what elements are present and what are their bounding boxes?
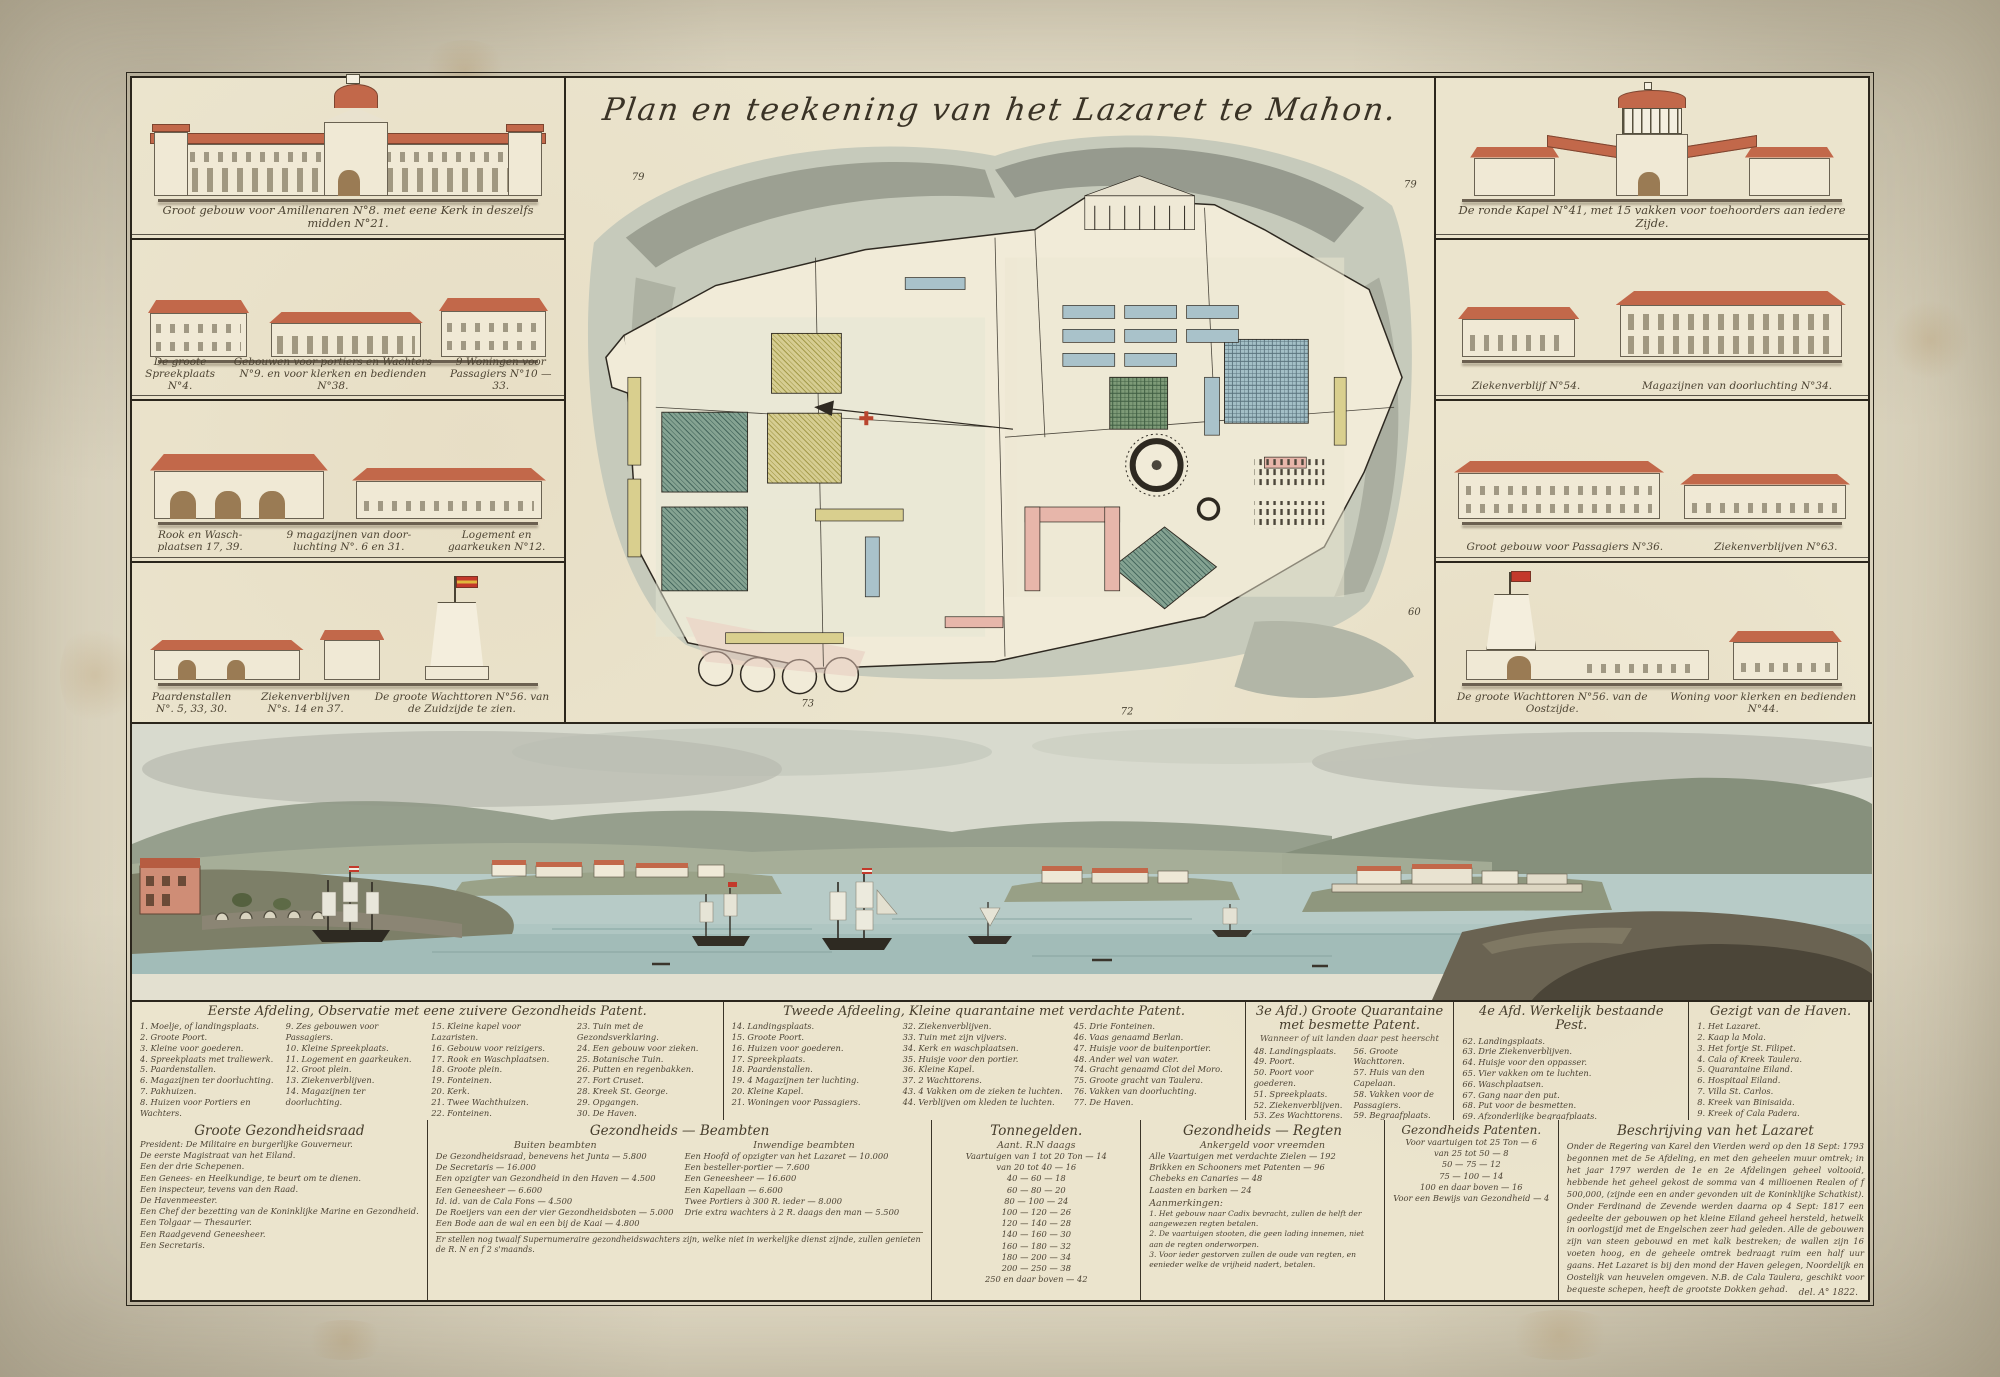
legend-entry: 5. Quarantaine Eiland. <box>1697 1064 1864 1075</box>
legend-entry: 76. Vakken van doorluchting. <box>1074 1086 1237 1097</box>
legend-entry: 59. Begraafplaats. <box>1353 1110 1445 1120</box>
caption-text: Gebouwen voor portiers en Wachters N°9. … <box>228 356 437 392</box>
regten-note: 3. Voor ieder gestorven zullen de oude v… <box>1149 1250 1376 1271</box>
elevation-panel-watchtower-south: Paardenstallen N°. 5, 33, 30.Ziekenverbl… <box>132 563 564 723</box>
legend-entry: 15. Kleine kapel voor Lazaristen. <box>431 1021 569 1043</box>
elevation-panel-great-building: Groot gebouw voor Amillenaren N°8. met e… <box>132 78 564 240</box>
right-elevation-column: De ronde Kapel N°41, met 15 vakken voor … <box>1434 78 1868 722</box>
elevation-panel-spreekplaats: De groote Spreekplaats N°4.Gebouwen voor… <box>132 240 564 402</box>
patenten-row: van 25 tot 50 — 8 <box>1393 1148 1550 1159</box>
foxing-stain <box>300 1320 390 1360</box>
legend-col-gezigt-haven: Gezigt van de Haven. 1. Het Lazaret.2. K… <box>1689 1002 1872 1120</box>
site-plan-cell: Plan en teekening van het Lazaret te Mah… <box>566 78 1434 722</box>
legend-entry: 77. De Haven. <box>1074 1097 1237 1108</box>
beambten-row: Een Bode aan de wal en een bij de Kaai —… <box>436 1218 675 1229</box>
subsection-header: Buiten beambten <box>436 1140 675 1151</box>
legend-entry: 35. Huisje voor den portier. <box>903 1054 1066 1065</box>
caption-text: Groot gebouw voor Passagiers N°36. <box>1466 541 1663 553</box>
legend-entry: 30. De Haven. <box>577 1108 715 1119</box>
legend-entry: 19. 4 Magazijnen ter luchting. <box>732 1075 895 1086</box>
legend-entry: 9. Kreek of Cala Padera. <box>1697 1108 1864 1119</box>
foxing-stain <box>60 620 130 730</box>
legend-row-afdelingen: Eerste Afdeling, Observatie met eene zui… <box>132 1002 1872 1120</box>
section-beschrijving: Beschrijving van het Lazaret Onder de Re… <box>1559 1120 1872 1300</box>
legend-subheader: Wanneer of uit landen daar pest heerscht <box>1254 1034 1446 1044</box>
legend-entry: 8. Huizen voor Portiers en Wachters. <box>140 1097 278 1119</box>
legend-row-administratie: Groote Gezondheidsraad President: De Mil… <box>132 1120 1872 1300</box>
legend-entry: 34. Kerk en waschplaatsen. <box>903 1043 1066 1054</box>
tonnage-row: van 20 tot 40 — 16 <box>940 1162 1132 1173</box>
legend-col-tweede-afdeling: Tweede Afdeeling, Kleine quarantaine met… <box>724 1002 1246 1120</box>
beambten-inwendig: Inwendige beambten Een Hoofd of opzigter… <box>685 1139 924 1229</box>
elevation-panel-passagiers: Groot gebouw voor Passagiers N°36.Zieken… <box>1436 401 1868 563</box>
caption-text: De groote Spreekplaats N°4. <box>142 356 218 392</box>
beambten-row: Drie extra wachters à 2 R. daags den man… <box>685 1207 924 1218</box>
elevation-panel-magazijnen: Ziekenverblijf N°54.Magazijnen van doorl… <box>1436 240 1868 402</box>
legend-entry: 1. Moelje, of landingsplaats. <box>140 1021 278 1032</box>
tonnage-row: 180 — 200 — 34 <box>940 1252 1132 1263</box>
section-line: De eerste Magistraat van het Eiland. <box>140 1150 419 1161</box>
legend-entry: 44. Verblijven om kleden te luchten. <box>903 1097 1066 1108</box>
legend-entry: 33. Tuin met zijn vijvers. <box>903 1032 1066 1043</box>
legend-entry: 11. Logement en gaarkeuken. <box>286 1054 424 1065</box>
legend-entry: 29. Opgangen. <box>577 1097 715 1108</box>
beambten-buiten: Buiten beambten De Gezondheidsraad, bene… <box>436 1139 675 1229</box>
caption: Rook en Wasch- plaatsen 17, 39.9 magazij… <box>142 529 554 553</box>
legend-entry: 18. Paardenstallen. <box>732 1064 895 1075</box>
beambten-footnote: Er stellen nog twaalf Supernumeraire gez… <box>436 1232 924 1255</box>
section-line: Een Secretaris. <box>140 1240 419 1251</box>
legend-entries: 48. Landingsplaats.49. Poort.50. Poort v… <box>1254 1046 1446 1120</box>
legend-entry: 75. Groote gracht van Taulera. <box>1074 1075 1237 1086</box>
beambten-row: Een Geneesheer — 16.600 <box>685 1173 924 1184</box>
regten-notes: 1. Het gebouw naar Cadix bevracht, zulle… <box>1149 1209 1376 1271</box>
regten-rows: Alle Vaartuigen met verdachte Zielen — 1… <box>1149 1151 1376 1196</box>
section-line: Een Raadgevend Geneesheer. <box>140 1229 419 1240</box>
section-line: Een Tolgaar — Thesaurier. <box>140 1217 419 1228</box>
caption: Groot gebouw voor Amillenaren N°8. met e… <box>142 204 554 230</box>
site-plan: 79 79 60 73 72 <box>566 78 1434 721</box>
section-gezondheidsraad: Groote Gezondheidsraad President: De Mil… <box>132 1120 428 1300</box>
caption: De ronde Kapel N°41, met 15 vakken voor … <box>1446 204 1858 230</box>
caption: Ziekenverblijf N°54.Magazijnen van doorl… <box>1446 380 1858 392</box>
beambten-rows: Een Hoofd of opzigter van het Lazaret — … <box>685 1151 924 1218</box>
legend-entry: 16. Gebouw voor reizigers. <box>431 1043 569 1054</box>
legend-entries: 1. Het Lazaret.2. Kaap la Mola.3. Het fo… <box>1697 1021 1864 1118</box>
legend-entry: 23. Tuin met de Gezondsverklaring. <box>577 1021 715 1043</box>
tonnage-row: 200 — 250 — 38 <box>940 1263 1132 1274</box>
section-regten: Gezondheids — Regten Ankergeld voor vree… <box>1141 1120 1385 1300</box>
caption: De groote Spreekplaats N°4.Gebouwen voor… <box>142 356 554 392</box>
legend-entry: 48. Landingsplaats. <box>1254 1046 1346 1057</box>
top-zone: Groot gebouw voor Amillenaren N°8. met e… <box>132 78 1868 722</box>
legend-header: Eerste Afdeling, Observatie met eene zui… <box>140 1005 715 1019</box>
section-line: Een inspecteur, tevens van den Raad. <box>140 1184 419 1195</box>
elevation-drawing-stables-and-tower <box>146 573 550 687</box>
caption-text: Rook en Wasch- plaatsen 17, 39. <box>142 529 258 553</box>
legend-entry: 57. Huis van den Capelaan. <box>1353 1067 1445 1089</box>
notes-title: Aanmerkingen: <box>1149 1198 1376 1209</box>
patenten-row: Voor een Bewijs van Gezondheid — 4 <box>1393 1193 1550 1204</box>
regten-row: Chebeks en Canaries — 48 <box>1149 1173 1376 1184</box>
tonnage-row: 60 — 80 — 20 <box>940 1185 1132 1196</box>
legend-entry: 3. Het fortje St. Filipet. <box>1697 1043 1864 1054</box>
legend-entry: 37. 2 Wachttorens. <box>903 1075 1066 1086</box>
section-line: President: De Militaire en burgerlijke G… <box>140 1139 419 1150</box>
legend-entry: 64. Huisje voor den oppasser. <box>1462 1057 1680 1068</box>
tonnage-row: 100 — 120 — 26 <box>940 1207 1132 1218</box>
caption-text: Ziekenverblijven N°s. 14 en 37. <box>251 691 360 715</box>
beambten-row: Een Hoofd of opzigter van het Lazaret — … <box>685 1151 924 1162</box>
legend-entry: 32. Ziekenverblijven. <box>903 1021 1066 1032</box>
elevation-drawing-round-chapel <box>1450 88 1854 202</box>
svg-text:73: 73 <box>801 699 814 710</box>
harbor-panorama <box>132 722 1872 1002</box>
beambten-row: De Secretaris — 16.000 <box>436 1162 675 1173</box>
legend-entry: 6. Hospitaal Eiland. <box>1697 1075 1864 1086</box>
elevation-drawing-three-buildings <box>146 250 550 364</box>
legend-entry: 52. Ziekenverblijven. <box>1254 1100 1346 1111</box>
elevation-drawing-passenger-building <box>1450 411 1854 525</box>
legend-entry: 17. Spreekplaats. <box>732 1054 895 1065</box>
foxing-stain <box>1500 1310 1620 1360</box>
legend-entry: 74. Gracht genaamd Clot del Moro. <box>1074 1064 1237 1075</box>
section-beambten: Gezondheids — Beambten Buiten beambten D… <box>428 1120 933 1300</box>
legend-entry: 21. Woningen voor Passagiers. <box>732 1097 895 1108</box>
section-line: De Havenmeester. <box>140 1195 419 1206</box>
beambten-row: Een Kapellaan — 6.600 <box>685 1185 924 1196</box>
legend-entry: 48. Ander wel van water. <box>1074 1054 1237 1065</box>
legend-entry: 24. Een gebouw voor zieken. <box>577 1043 715 1054</box>
legend-header: 3e Afd.) Groote Quarantaine met besmette… <box>1254 1005 1446 1034</box>
patenten-row: Voor vaartuigen tot 25 Ton — 6 <box>1393 1137 1550 1148</box>
amount-label: Aant. R.N daags <box>940 1140 1132 1151</box>
section-tonnegelden: Tonnegelden. Aant. R.N daags Vaartuigen … <box>932 1120 1141 1300</box>
beambten-rows: De Gezondheidsraad, benevens het Junta —… <box>436 1151 675 1229</box>
legend-entry: 15. Groote Poort. <box>732 1032 895 1043</box>
beambten-row: Twee Portiers à 300 R. ieder — 8.000 <box>685 1196 924 1207</box>
legend-entry: 46. Vaas genaamd Berlan. <box>1074 1032 1237 1043</box>
legend-entry: 4. Spreekplaats met traliewerk. <box>140 1054 278 1065</box>
red-flag <box>1511 571 1531 582</box>
section-header: Beschrijving van het Lazaret <box>1567 1123 1864 1139</box>
legend-entry: 62. Landingsplaats. <box>1462 1036 1680 1047</box>
beambten-row: De Gezondheidsraad, benevens het Junta —… <box>436 1151 675 1162</box>
subsection-header: Inwendige beambten <box>685 1140 924 1151</box>
tonnage-row: 80 — 100 — 24 <box>940 1196 1132 1207</box>
legend-entry: 69. Afzonderlijke begraafplaats. <box>1462 1111 1680 1120</box>
caption-text: Groot gebouw voor Amillenaren N°8. met e… <box>142 204 554 230</box>
caption-text: Ziekenverblijven N°63. <box>1714 541 1837 553</box>
legend-entry: 18. Groote plein. <box>431 1064 569 1075</box>
elevation-drawing-great-building <box>146 88 550 202</box>
beambten-row: Een Geneesheer — 6.600 <box>436 1185 675 1196</box>
elevation-drawing-magazines <box>1450 250 1854 364</box>
harbor-view <box>132 724 1872 1000</box>
legend-entries: 1. Moelje, of landingsplaats.2. Groote P… <box>140 1021 715 1118</box>
tonnage-row: Vaartuigen van 1 tot 20 Ton — 14 <box>940 1151 1132 1162</box>
legend-entry: 65. Vier vakken om te luchten. <box>1462 1068 1680 1079</box>
legend-entry: 53. Zes Wachttorens. <box>1254 1110 1346 1120</box>
legend-entry: 49. Poort. <box>1254 1056 1346 1067</box>
legend-entry: 1. Het Lazaret. <box>1697 1021 1864 1032</box>
legend-col-derde-afdeling: 3e Afd.) Groote Quarantaine met besmette… <box>1246 1002 1455 1120</box>
legend-entry: 19. Fonteinen. <box>431 1075 569 1086</box>
tonnage-row: 140 — 160 — 30 <box>940 1229 1132 1240</box>
legend-entry: 63. Drie Ziekenverblijven. <box>1462 1046 1680 1057</box>
legend-entry: 17. Rook en Waschplaatsen. <box>431 1054 569 1065</box>
legend-entry: 45. Drie Fonteinen. <box>1074 1021 1237 1032</box>
foxing-stain <box>1890 300 1970 380</box>
patenten-row: 75 — 100 — 14 <box>1393 1171 1550 1182</box>
legend-entry: 36. Kleine Kapel. <box>903 1064 1066 1075</box>
elevation-panel-round-chapel: De ronde Kapel N°41, met 15 vakken voor … <box>1436 78 1868 240</box>
patenten-rows: Voor vaartuigen tot 25 Ton — 6van 25 tot… <box>1393 1137 1550 1204</box>
legend-entry: 51. Spreekplaats. <box>1254 1089 1346 1100</box>
legend-entry: 2. Groote Poort. <box>140 1032 278 1043</box>
legend-entry: 14. Landingsplaats. <box>732 1021 895 1032</box>
section-header: Gezondheids — Beambten <box>436 1123 924 1139</box>
caption-text: De groote Wachttoren N°56. van de Zuidzi… <box>370 691 554 715</box>
plate-border-frame: Groot gebouw voor Amillenaren N°8. met e… <box>130 76 1870 1302</box>
legend-entry: 13. Ziekenverblijven. <box>286 1075 424 1086</box>
svg-text:60: 60 <box>1408 607 1421 618</box>
legend-entry: 50. Poort voor goederen. <box>1254 1067 1346 1089</box>
legend-entry: 22. Fonteinen. <box>431 1108 569 1119</box>
legend-entry: 10. Kleine Spreekplaats. <box>286 1043 424 1054</box>
legend-entry: 56. Groote Wachttoren. <box>1353 1046 1445 1068</box>
legend-entry: 43. 4 Vakken om de zieken te luchten. <box>903 1086 1066 1097</box>
section-header: Gezondheids — Regten <box>1149 1123 1376 1139</box>
section-line: Een Chef der bezetting van de Koninklijk… <box>140 1206 419 1217</box>
legend-entry: 5. Paardenstallen. <box>140 1064 278 1075</box>
legend-entry: 27. Fort Cruset. <box>577 1075 715 1086</box>
tonnage-table: Vaartuigen van 1 tot 20 Ton — 14van 20 t… <box>940 1151 1132 1285</box>
elevation-panel-watchtower-east: De groote Wachttoren N°56. van de Oostzi… <box>1436 563 1868 723</box>
tonnage-row: 120 — 140 — 28 <box>940 1218 1132 1229</box>
legend-entry: 66. Waschplaatsen. <box>1462 1079 1680 1090</box>
legend-header: 4e Afd. Werkelijk bestaande Pest. <box>1462 1005 1680 1034</box>
caption-text: Magazijnen van doorluchting N°34. <box>1642 380 1832 392</box>
legend-entries: 62. Landingsplaats.63. Drie Ziekenverbli… <box>1462 1036 1680 1120</box>
spanish-flag <box>456 576 478 588</box>
legend-entry: 12. Groot plein. <box>286 1064 424 1075</box>
legend-header: Tweede Afdeeling, Kleine quarantaine met… <box>732 1005 1237 1019</box>
caption-text: Ziekenverblijf N°54. <box>1472 380 1580 392</box>
legend-entry: 7. Pakhuizen. <box>140 1086 278 1097</box>
svg-text:79: 79 <box>632 172 645 183</box>
caption-text: Woning voor klerken en bedienden N°44. <box>1668 691 1858 715</box>
legend-entry: 20. Kleine Kapel. <box>732 1086 895 1097</box>
legend-col-vierde-afdeling: 4e Afd. Werkelijk bestaande Pest. 62. La… <box>1454 1002 1689 1120</box>
section-line: Een Genees- en Heelkundige, te beurt om … <box>140 1173 419 1184</box>
legend-entry: 20. Kerk. <box>431 1086 569 1097</box>
beambten-row: Id. id. van de Cala Fons — 4.500 <box>436 1196 675 1207</box>
caption: De groote Wachttoren N°56. van de Oostzi… <box>1446 691 1858 715</box>
section-header: Gezondheids Patenten. <box>1393 1123 1550 1137</box>
elevation-drawing-sheds <box>146 411 550 525</box>
patenten-row: 100 en daar boven — 16 <box>1393 1182 1550 1193</box>
legend-entry: 21. Twee Wachthuizen. <box>431 1097 569 1108</box>
patenten-row: 50 — 75 — 12 <box>1393 1159 1550 1170</box>
svg-text:79: 79 <box>1404 180 1417 191</box>
elevation-drawing-tower-east <box>1450 573 1854 687</box>
caption-text: Logement en gaarkeuken N°12. <box>439 529 554 553</box>
legend-entry: 3. Kleine voor goederen. <box>140 1043 278 1054</box>
elevation-panel-waschplaatsen: Rook en Wasch- plaatsen 17, 39.9 magazij… <box>132 401 564 563</box>
legend-header: Gezigt van de Haven. <box>1697 1005 1864 1019</box>
legend-entry: 58. Vakken voor de Passagiers. <box>1353 1089 1445 1111</box>
legend-entry: 28. Kreek St. George. <box>577 1086 715 1097</box>
caption-text: 9 Woningen voor Passagiers N°10 — 33. <box>448 356 554 392</box>
left-elevation-column: Groot gebouw voor Amillenaren N°8. met e… <box>132 78 566 722</box>
legend-entry: 68. Put voor de besmetten. <box>1462 1100 1680 1111</box>
regten-row: Laasten en barken — 24 <box>1149 1185 1376 1196</box>
subsection-header: Ankergeld voor vreemden <box>1149 1140 1376 1151</box>
legend-entry: 25. Botanische Tuin. <box>577 1054 715 1065</box>
artist-signature: del. A° 1822. <box>1799 1288 1858 1298</box>
legend-entry: 26. Putten en regenbakken. <box>577 1064 715 1075</box>
legend-entry: 2. Kaap la Mola. <box>1697 1032 1864 1043</box>
regten-row: Brikken en Schooners met Patenten — 96 <box>1149 1162 1376 1173</box>
regten-note: 2. De vaartuigen stooten, die geen ladin… <box>1149 1229 1376 1250</box>
section-header: Groote Gezondheidsraad <box>140 1123 419 1139</box>
legend-col-eerste-afdeling: Eerste Afdeling, Observatie met eene zui… <box>132 1002 724 1120</box>
section-lines: President: De Militaire en burgerlijke G… <box>140 1139 419 1251</box>
caption: Groot gebouw voor Passagiers N°36.Zieken… <box>1446 541 1858 553</box>
tonnage-row: 40 — 60 — 18 <box>940 1173 1132 1184</box>
caption-text: De ronde Kapel N°41, met 15 vakken voor … <box>1446 204 1858 230</box>
legend-entry: 47. Huisje voor de buitenportier. <box>1074 1043 1237 1054</box>
caption-text: Paardenstallen N°. 5, 33, 30. <box>142 691 241 715</box>
beambten-row: De Roeijers van een der vier Gezondheids… <box>436 1207 675 1218</box>
scanned-plan-sheet: { "title": "Plan en teekening van het La… <box>0 0 2000 1377</box>
description-paragraph: Onder de Regering van Karel den Vierden … <box>1567 1141 1864 1296</box>
legend-entry: 7. Villa St. Carlos. <box>1697 1086 1864 1097</box>
legend-entry: 9. Zes gebouwen voor Passagiers. <box>286 1021 424 1043</box>
caption-text: 9 magazijnen van door- luchting N°. 6 en… <box>268 529 429 553</box>
legend-entry: 6. Magazijnen ter doorluchting. <box>140 1075 278 1086</box>
svg-text:72: 72 <box>1121 707 1134 718</box>
beambten-row: Een besteller-portier — 7.600 <box>685 1162 924 1173</box>
tonnage-row: 250 en daar boven — 42 <box>940 1274 1132 1285</box>
legend-entry: 8. Kreek van Binisaida. <box>1697 1097 1864 1108</box>
tonnage-row: 160 — 180 — 32 <box>940 1241 1132 1252</box>
legend-entries: 14. Landingsplaats.15. Groote Poort.16. … <box>732 1021 1237 1107</box>
regten-row: Alle Vaartuigen met verdachte Zielen — 1… <box>1149 1151 1376 1162</box>
legend-entry: 67. Gang naar den put. <box>1462 1090 1680 1101</box>
legend-entry: 4. Cala of Kreek Taulera. <box>1697 1054 1864 1065</box>
beambten-row: Een opzigter van Gezondheid in den Haven… <box>436 1173 675 1184</box>
caption: Paardenstallen N°. 5, 33, 30.Ziekenverbl… <box>142 691 554 715</box>
section-line: Een der drie Schepenen. <box>140 1161 419 1172</box>
caption-text: De groote Wachttoren N°56. van de Oostzi… <box>1446 691 1658 715</box>
section-patenten: Gezondheids Patenten. Voor vaartuigen to… <box>1385 1120 1559 1300</box>
regten-note: 1. Het gebouw naar Cadix bevracht, zulle… <box>1149 1209 1376 1230</box>
legend-entry: 16. Huizen voor goederen. <box>732 1043 895 1054</box>
section-header: Tonnegelden. <box>940 1123 1132 1139</box>
legend-entry: 14. Magazijnen ter doorluchting. <box>286 1086 424 1108</box>
